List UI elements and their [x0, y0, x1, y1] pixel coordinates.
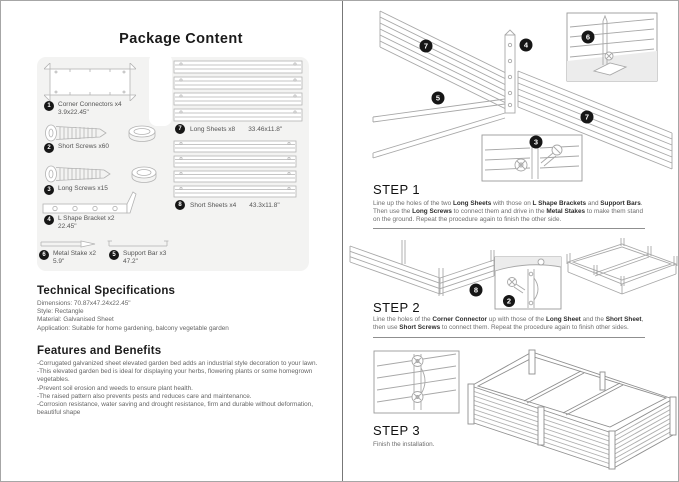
item-metal-stake: 6 Metal Stake x2 5.9": [39, 250, 96, 266]
item-number-badge: 1: [44, 101, 54, 111]
features-list: -Corrugated galvanized sheet elevated ga…: [37, 360, 337, 417]
spec-line: Style: Rectangle: [37, 308, 327, 316]
item-support-bar: 5 Support Bar x3 47.2": [109, 250, 166, 266]
corner-connector-drawing: [44, 63, 136, 101]
spec-line: Material: Galvanised Sheet: [37, 316, 327, 324]
spec-line: Application: Suitable for home gardening…: [37, 325, 327, 333]
item-size: 5.9": [53, 258, 64, 265]
feature-bullet: -Corrosion resistance, water saving and …: [37, 401, 337, 417]
item-number-badge: 4: [44, 215, 54, 225]
item-name: Short Screws x60: [58, 143, 109, 150]
badge-metal-stake: 6: [586, 33, 590, 42]
item-name: Support Bar x3: [123, 250, 166, 257]
spec-line: Dimensions: 70.87x47.24x22.45": [37, 300, 327, 308]
section-rule: [373, 228, 645, 229]
item-size: 33.46x11.8": [248, 126, 282, 133]
step2-text: Line the holes of the Corner Connector u…: [373, 316, 655, 332]
item-short-screws: 2 Short Screws x60: [44, 143, 109, 153]
item-l-shape-bracket: 4 L Shape Bracket x2 22.45": [44, 215, 115, 231]
feature-bullet: -The raised pattern also prevents pests …: [37, 393, 337, 401]
item-name: Corner Connectors x4: [58, 101, 122, 108]
item-corner-connectors: 1 Corner Connectors x4 3.9x22.45": [44, 101, 122, 117]
item-size: 22.45": [58, 223, 77, 230]
badge-short-screw: 2: [507, 297, 511, 306]
support-bar-drawing: [107, 238, 169, 248]
step1-text: Line up the holes of the two Long Sheets…: [373, 200, 651, 225]
tech-specs-heading: Technical Specifications: [37, 285, 175, 297]
short-sheets-drawing: [173, 140, 297, 198]
features-heading: Features and Benefits: [37, 345, 161, 357]
metal-stake-drawing: [39, 239, 99, 249]
section-rule: [373, 337, 645, 338]
item-number-badge: 2: [44, 143, 54, 153]
tech-specs-list: Dimensions: 70.87x47.24x22.45" Style: Re…: [37, 300, 327, 333]
feature-bullet: -Corrugated galvanized sheet elevated ga…: [37, 360, 337, 368]
item-name: Short Sheets x4: [190, 202, 236, 209]
long-screw-drawing: [44, 162, 164, 186]
item-size: 3.9x22.45": [58, 109, 89, 116]
step2-heading: STEP 2: [373, 300, 420, 315]
item-number-badge: 5: [109, 250, 119, 260]
long-sheets-drawing: [173, 60, 303, 122]
badge-long-screw: 3: [534, 138, 538, 147]
item-name: Metal Stake x2: [53, 250, 96, 257]
feature-bullet: -This elevated garden bed is ideal for d…: [37, 368, 337, 384]
instruction-sheet: Package Content 1 Corner Connectors x4 3…: [0, 0, 679, 482]
step1-illustration: 7 4 6 5 7 3: [342, 1, 679, 183]
short-screw-drawing: [44, 121, 164, 145]
item-long-sheets: 7 Long Sheets x8 33.46x11.8": [175, 124, 282, 134]
badge-support-bar: 5: [436, 94, 440, 103]
step3-heading: STEP 3: [373, 423, 420, 438]
badge-long-sheet: 7: [424, 42, 428, 51]
item-number-badge: 6: [39, 250, 49, 260]
item-size: 43.3x11.8": [249, 202, 279, 209]
l-shape-bracket-drawing: [41, 191, 137, 217]
step3-illustration: [342, 344, 679, 479]
badge-long-sheet-2: 7: [585, 113, 589, 122]
panel-column-gap: [149, 53, 172, 126]
step3-text: Finish the installation.: [373, 441, 573, 449]
item-size: 47.2": [123, 258, 138, 265]
step1-heading: STEP 1: [373, 182, 420, 197]
item-number-badge: 8: [175, 200, 185, 210]
feature-bullet: -Prevent soil erosion and weeds to ensur…: [37, 385, 337, 393]
item-name: L Shape Bracket x2: [58, 215, 115, 222]
badge-short-sheet: 8: [474, 286, 478, 295]
item-number-badge: 7: [175, 124, 185, 134]
page-title: Package Content: [1, 31, 361, 47]
item-short-sheets: 8 Short Sheets x4 43.3x11.8": [175, 200, 280, 210]
item-name: Long Sheets x8: [190, 126, 235, 133]
